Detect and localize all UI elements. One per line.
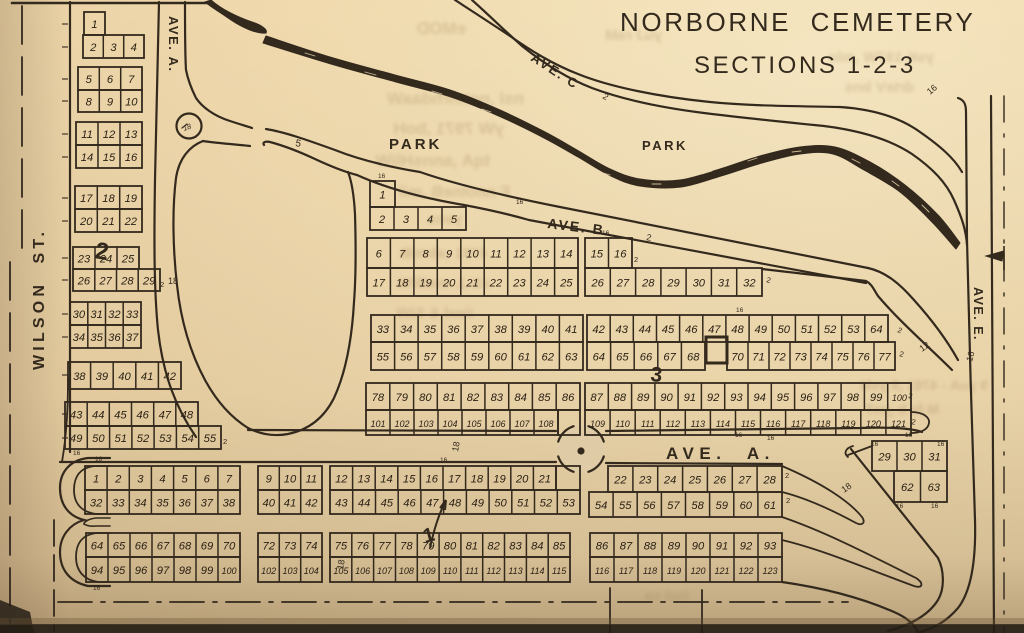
svg-text:7: 7 (128, 74, 135, 86)
svg-text:100: 100 (221, 566, 236, 576)
svg-text:102: 102 (394, 419, 409, 429)
svg-text:96: 96 (800, 392, 813, 404)
svg-text:NORBORNE CEMETERY: NORBORNE CEMETERY (620, 7, 975, 37)
svg-text:43: 43 (615, 324, 628, 336)
svg-text:23: 23 (512, 277, 526, 289)
svg-text:35: 35 (424, 324, 437, 336)
svg-text:76: 76 (857, 351, 870, 363)
svg-text:47: 47 (426, 497, 439, 509)
svg-text:90: 90 (692, 540, 705, 552)
svg-text:3: 3 (110, 42, 117, 54)
svg-text:112: 112 (486, 566, 500, 576)
svg-text:77: 77 (378, 540, 391, 552)
svg-text:12: 12 (103, 129, 116, 141)
svg-text:22: 22 (124, 216, 138, 228)
svg-text:18: 18 (102, 193, 115, 205)
svg-text:26: 26 (77, 275, 91, 287)
svg-text:2: 2 (785, 471, 789, 480)
svg-text:17: 17 (80, 193, 93, 205)
svg-text:70: 70 (223, 540, 236, 552)
svg-text:120: 120 (866, 419, 881, 429)
svg-text:98: 98 (179, 565, 192, 577)
svg-text:1: 1 (379, 189, 385, 201)
svg-text:78: 78 (400, 540, 413, 552)
svg-text:122: 122 (738, 566, 753, 576)
svg-text:93: 93 (730, 392, 743, 404)
svg-text:105: 105 (466, 419, 482, 429)
svg-text:11: 11 (305, 473, 317, 485)
svg-text:110: 110 (443, 566, 457, 576)
svg-text:PARK: PARK (389, 136, 442, 153)
svg-text:92: 92 (740, 540, 753, 552)
svg-text:72: 72 (262, 540, 275, 552)
svg-text:81: 81 (443, 392, 455, 404)
svg-text:32: 32 (90, 497, 103, 509)
svg-text:6: 6 (204, 473, 211, 485)
svg-text:27: 27 (616, 277, 630, 289)
svg-text:64: 64 (870, 324, 882, 336)
svg-text:85: 85 (538, 392, 551, 404)
svg-text:121: 121 (891, 419, 906, 429)
svg-text:47: 47 (708, 324, 721, 336)
svg-text:21: 21 (537, 473, 550, 485)
svg-text:16: 16 (931, 503, 939, 510)
svg-text:22: 22 (613, 474, 627, 486)
svg-text:eMOD: eMOD (417, 19, 466, 38)
svg-text:5: 5 (86, 74, 93, 86)
svg-text:56: 56 (400, 351, 413, 363)
svg-text:79: 79 (395, 392, 407, 404)
svg-text:90: 90 (660, 392, 673, 404)
svg-text:113: 113 (508, 566, 522, 576)
svg-text:51: 51 (801, 324, 813, 336)
svg-text:44: 44 (639, 324, 651, 336)
svg-text:30: 30 (693, 277, 706, 289)
svg-text:75: 75 (335, 540, 348, 552)
svg-text:19: 19 (493, 473, 505, 485)
svg-text:20: 20 (442, 277, 456, 289)
svg-text:63: 63 (565, 351, 578, 363)
svg-text:16: 16 (440, 457, 448, 464)
svg-text:16: 16 (125, 152, 138, 164)
svg-text:19: 19 (419, 277, 431, 289)
svg-text:107: 107 (377, 566, 393, 576)
svg-text:2: 2 (89, 42, 97, 54)
svg-text:29: 29 (877, 451, 890, 463)
svg-text:44: 44 (92, 409, 104, 421)
svg-text:33: 33 (377, 324, 390, 336)
svg-text:2: 2 (786, 496, 790, 505)
svg-text:13: 13 (537, 248, 550, 260)
svg-text:65: 65 (113, 540, 126, 552)
svg-text:45: 45 (114, 409, 127, 421)
svg-text:8: 8 (422, 248, 429, 260)
svg-text:17: 17 (372, 277, 385, 289)
svg-text:73: 73 (794, 351, 807, 363)
svg-text:22: 22 (489, 277, 503, 289)
svg-text:43: 43 (335, 497, 348, 509)
svg-text:37: 37 (471, 324, 484, 336)
svg-text:4: 4 (131, 42, 137, 54)
svg-text:85: 85 (553, 540, 566, 552)
svg-text:17: 17 (448, 473, 461, 485)
svg-text:37: 37 (201, 497, 214, 509)
svg-text:38: 38 (73, 371, 86, 383)
svg-text:103: 103 (282, 566, 297, 576)
svg-text:54: 54 (595, 500, 607, 512)
svg-text:69: 69 (201, 540, 213, 552)
svg-text:107: 107 (514, 419, 530, 429)
svg-text:113: 113 (691, 419, 705, 429)
svg-text:27: 27 (737, 474, 751, 486)
svg-text:iiwd & SiW: iiwd & SiW (395, 305, 473, 322)
svg-text:84: 84 (514, 392, 526, 404)
svg-text:49: 49 (471, 497, 483, 509)
svg-text:55: 55 (204, 433, 217, 445)
svg-text:30: 30 (903, 451, 916, 463)
svg-text:48: 48 (449, 497, 462, 509)
svg-text:93: 93 (764, 540, 777, 552)
svg-text:116: 116 (766, 419, 780, 429)
svg-text:16: 16 (735, 432, 743, 439)
svg-text:6: 6 (107, 74, 114, 86)
svg-text:7: 7 (226, 473, 233, 485)
svg-text:2: 2 (114, 473, 122, 485)
svg-text:14: 14 (560, 248, 572, 260)
svg-text:70: 70 (731, 351, 744, 363)
svg-text:48: 48 (731, 324, 744, 336)
svg-text:32: 32 (108, 309, 121, 321)
svg-text:9: 9 (107, 96, 113, 108)
svg-text:16: 16 (93, 585, 101, 592)
svg-text:104: 104 (442, 419, 457, 429)
svg-text:111: 111 (641, 419, 655, 429)
svg-text:23: 23 (77, 253, 91, 265)
svg-text:10: 10 (125, 96, 138, 108)
svg-text:35: 35 (156, 497, 169, 509)
svg-text:55: 55 (619, 500, 632, 512)
svg-text:97: 97 (823, 392, 836, 404)
svg-text:89: 89 (668, 540, 680, 552)
svg-text:39: 39 (96, 371, 108, 383)
svg-text:114: 114 (530, 566, 544, 576)
svg-text:50: 50 (92, 433, 105, 445)
svg-text:62: 62 (901, 482, 914, 494)
svg-text:9 yuA - 4781 ,8 ysM: 9 yuA - 4781 ,8 ysM (860, 377, 988, 393)
svg-text:51: 51 (517, 497, 529, 509)
svg-text:46: 46 (136, 409, 149, 421)
svg-text:23: 23 (638, 474, 652, 486)
svg-text:39: 39 (518, 324, 530, 336)
svg-text:16: 16 (516, 199, 524, 206)
svg-text:2: 2 (223, 437, 227, 446)
svg-text:38: 38 (223, 497, 236, 509)
svg-text:65: 65 (616, 351, 629, 363)
svg-text:AVE. A.: AVE. A. (166, 16, 181, 73)
svg-text:45: 45 (662, 324, 675, 336)
svg-text:81: 81 (466, 540, 478, 552)
svg-text:95: 95 (113, 565, 126, 577)
svg-text:101: 101 (370, 419, 385, 429)
svg-text:15: 15 (403, 473, 416, 485)
svg-text:18: 18 (335, 559, 347, 571)
svg-text:24: 24 (536, 277, 549, 289)
svg-text:115: 115 (552, 566, 567, 576)
svg-text:36: 36 (447, 324, 460, 336)
svg-text:33: 33 (126, 309, 139, 321)
svg-text:20: 20 (515, 473, 529, 485)
svg-text:64: 64 (91, 540, 103, 552)
svg-text:115: 115 (741, 419, 756, 429)
svg-text:2: 2 (378, 214, 386, 226)
svg-text:7: 7 (399, 248, 406, 260)
svg-text:109: 109 (590, 419, 605, 429)
svg-text:41: 41 (565, 324, 577, 336)
svg-text:53: 53 (159, 433, 172, 445)
svg-text:12: 12 (513, 248, 526, 260)
svg-text:drteV bns: drteV bns (845, 79, 914, 96)
svg-text:34: 34 (400, 324, 412, 336)
svg-text:94: 94 (753, 392, 765, 404)
svg-text:16: 16 (614, 248, 627, 260)
svg-text:16: 16 (425, 473, 438, 485)
svg-text:61: 61 (518, 351, 530, 363)
svg-text:60: 60 (740, 500, 753, 512)
svg-text:49: 49 (70, 433, 82, 445)
svg-text:26: 26 (590, 277, 604, 289)
svg-text:74: 74 (815, 351, 827, 363)
svg-text:82: 82 (487, 540, 500, 552)
svg-text:56: 56 (643, 500, 656, 512)
svg-text:50: 50 (778, 324, 791, 336)
svg-text:34: 34 (134, 497, 146, 509)
svg-text:57: 57 (667, 500, 680, 512)
svg-text:95: 95 (777, 392, 790, 404)
svg-text:100: 100 (892, 393, 907, 403)
svg-text:28: 28 (641, 277, 655, 289)
svg-text:9: 9 (446, 248, 452, 260)
svg-text:66: 66 (640, 351, 653, 363)
svg-text:36: 36 (108, 332, 121, 344)
svg-text:102: 102 (261, 566, 276, 576)
svg-text:96: 96 (135, 565, 148, 577)
svg-text:42: 42 (592, 324, 605, 336)
svg-text:45: 45 (381, 497, 394, 509)
svg-text:29: 29 (666, 277, 679, 289)
svg-text:16: 16 (896, 503, 904, 510)
svg-text:16: 16 (378, 173, 386, 180)
svg-text:16: 16 (767, 435, 775, 442)
svg-text:43: 43 (70, 409, 83, 421)
svg-text:48: 48 (181, 409, 194, 421)
svg-text:94: 94 (91, 565, 103, 577)
svg-text:13: 13 (125, 129, 138, 141)
svg-text:87: 87 (590, 392, 603, 404)
svg-text:AVE. E.: AVE. E. (971, 287, 985, 341)
svg-text:8: 8 (86, 96, 93, 108)
svg-text:40: 40 (541, 324, 554, 336)
svg-text:86: 86 (596, 540, 609, 552)
svg-text:118: 118 (643, 566, 657, 576)
svg-text:16: 16 (602, 230, 610, 237)
svg-text:16: 16 (73, 450, 81, 457)
svg-text:61: 61 (764, 500, 776, 512)
svg-text:37: 37 (126, 332, 139, 344)
svg-text:15: 15 (103, 152, 116, 164)
svg-text:25: 25 (121, 253, 135, 265)
svg-text:58: 58 (447, 351, 460, 363)
svg-text:104: 104 (304, 566, 319, 576)
svg-text:47: 47 (159, 409, 172, 421)
svg-text:1: 1 (93, 473, 99, 485)
svg-text:89: 89 (637, 392, 649, 404)
svg-text:123: 123 (762, 566, 777, 576)
svg-text:87: 87 (620, 540, 633, 552)
svg-text:99: 99 (870, 392, 882, 404)
svg-text:35: 35 (90, 332, 103, 344)
svg-text:52: 52 (137, 433, 150, 445)
svg-text:27: 27 (98, 275, 112, 287)
svg-text:67: 67 (663, 351, 676, 363)
svg-text:80: 80 (444, 540, 457, 552)
svg-text:108: 108 (399, 566, 414, 576)
svg-text:88: 88 (644, 540, 657, 552)
svg-text:36: 36 (178, 497, 191, 509)
svg-text:109: 109 (421, 566, 436, 576)
svg-text:53: 53 (562, 497, 575, 509)
svg-text:97: 97 (157, 565, 170, 577)
svg-text:66: 66 (135, 540, 148, 552)
svg-text:12: 12 (335, 473, 348, 485)
svg-text:42: 42 (305, 497, 318, 509)
svg-text:41: 41 (284, 497, 296, 509)
svg-text:2: 2 (160, 280, 164, 289)
svg-text:25: 25 (688, 474, 702, 486)
svg-text:117: 117 (619, 566, 634, 576)
svg-text:121: 121 (714, 566, 729, 576)
svg-text:78: 78 (372, 392, 385, 404)
svg-text:38: 38 (494, 324, 507, 336)
svg-text:11: 11 (81, 129, 93, 141)
svg-text:WILSON ST.: WILSON ST. (31, 228, 48, 370)
svg-text:88: 88 (614, 392, 627, 404)
svg-text:112: 112 (666, 419, 680, 429)
svg-text:91: 91 (684, 392, 696, 404)
svg-text:83: 83 (491, 392, 504, 404)
svg-text:59: 59 (715, 500, 727, 512)
svg-text:80: 80 (419, 392, 432, 404)
svg-text:55: 55 (377, 351, 390, 363)
svg-text:34: 34 (73, 332, 85, 344)
svg-text:50: 50 (494, 497, 507, 509)
svg-text:16: 16 (871, 441, 879, 448)
svg-text:16: 16 (905, 432, 913, 439)
svg-text:114: 114 (716, 419, 730, 429)
svg-text:72: 72 (773, 351, 786, 363)
svg-text:57: 57 (424, 351, 437, 363)
svg-text:15: 15 (591, 248, 604, 260)
svg-text:64: 64 (593, 351, 605, 363)
svg-text:119: 119 (667, 566, 681, 576)
svg-text:41: 41 (141, 371, 153, 383)
svg-text:103: 103 (418, 419, 433, 429)
svg-text:14: 14 (380, 473, 392, 485)
svg-text:62: 62 (541, 351, 554, 363)
svg-text:13: 13 (358, 473, 371, 485)
svg-text:PARK: PARK (642, 138, 688, 153)
svg-text:68: 68 (687, 351, 700, 363)
svg-text:28: 28 (762, 474, 776, 486)
svg-text:74: 74 (305, 540, 317, 552)
svg-text:44: 44 (358, 497, 370, 509)
svg-text:5: 5 (181, 473, 188, 485)
svg-text:33: 33 (112, 497, 125, 509)
svg-text:63: 63 (928, 482, 941, 494)
svg-text:3: 3 (403, 214, 410, 226)
svg-text:18: 18 (168, 276, 178, 286)
svg-text:42: 42 (163, 371, 176, 383)
svg-text:18: 18 (450, 441, 462, 453)
svg-text:59: 59 (471, 351, 483, 363)
svg-text:46: 46 (685, 324, 698, 336)
svg-text:5: 5 (451, 214, 458, 226)
svg-text:119: 119 (841, 419, 855, 429)
svg-text:20: 20 (79, 216, 93, 228)
svg-text:16: 16 (95, 456, 103, 463)
svg-text:1: 1 (91, 19, 97, 31)
svg-text:117: 117 (791, 419, 806, 429)
svg-text:SECTIONS 1-2-3: SECTIONS 1-2-3 (694, 52, 916, 79)
svg-text:49: 49 (754, 324, 766, 336)
svg-text:71: 71 (752, 351, 764, 363)
svg-text:68: 68 (179, 540, 192, 552)
svg-text:18: 18 (471, 473, 484, 485)
svg-text:52: 52 (824, 324, 837, 336)
svg-text:60: 60 (494, 351, 507, 363)
svg-text:83: 83 (509, 540, 522, 552)
svg-text:77: 77 (878, 351, 891, 363)
svg-text:99: 99 (201, 565, 213, 577)
svg-text:58: 58 (691, 500, 704, 512)
svg-text:6: 6 (376, 248, 383, 260)
svg-text:51: 51 (114, 433, 126, 445)
svg-text:3: 3 (650, 363, 664, 387)
svg-text:29: 29 (142, 275, 155, 287)
svg-text:10: 10 (466, 248, 479, 260)
svg-text:31: 31 (928, 451, 940, 463)
svg-text:75: 75 (836, 351, 849, 363)
svg-text:86: 86 (562, 392, 575, 404)
svg-text:16: 16 (937, 441, 945, 448)
svg-text:9: 9 (266, 473, 272, 485)
svg-text:28: 28 (120, 275, 134, 287)
svg-text:31: 31 (718, 277, 730, 289)
svg-text:82: 82 (467, 392, 480, 404)
svg-text:106: 106 (490, 419, 505, 429)
svg-text:46: 46 (403, 497, 416, 509)
svg-text:111: 111 (465, 566, 479, 576)
svg-text:40: 40 (118, 371, 131, 383)
svg-text:19: 19 (125, 193, 137, 205)
svg-text:14: 14 (81, 152, 93, 164)
svg-text:108: 108 (538, 419, 553, 429)
svg-text:4: 4 (159, 473, 165, 485)
svg-text:52: 52 (540, 497, 553, 509)
svg-text:30: 30 (73, 309, 86, 321)
svg-text:2: 2 (634, 255, 638, 264)
svg-text:120: 120 (690, 566, 705, 576)
svg-text:92: 92 (707, 392, 720, 404)
